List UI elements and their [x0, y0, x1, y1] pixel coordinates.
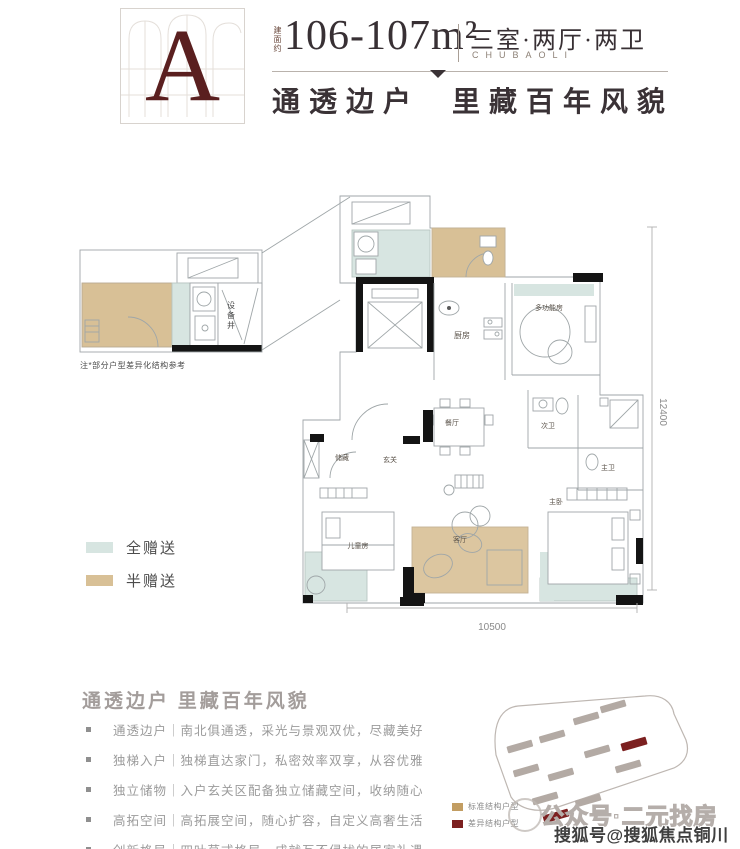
gift-legend-half: 半赠送	[86, 570, 177, 591]
gift-legend-full: 全赠送	[86, 537, 177, 558]
dimension-height: 12400	[657, 398, 668, 426]
watermark-logo-circle	[508, 798, 542, 832]
feature-item: 高拓空间｜高拓展空间，随心扩容，自定义高奢生活	[86, 810, 424, 829]
header-divider	[458, 24, 459, 62]
room-label-second-bath: 次卫	[541, 421, 555, 430]
bullet-icon	[86, 757, 91, 762]
full-gift-label: 全赠送	[126, 537, 177, 558]
bullet-icon	[86, 817, 91, 822]
room-label-multifunction: 多功能房	[535, 303, 563, 312]
elevator-shaft	[356, 277, 434, 352]
full-gift-swatch	[86, 542, 113, 553]
room-label-foyer: 玄关	[383, 455, 397, 464]
diff-structure-swatch	[452, 820, 463, 828]
standard-structure-swatch	[452, 803, 463, 811]
bathrooms	[528, 390, 643, 490]
feature-text: 独立储物｜入户玄关区配备独立储藏空间，收纳随心	[113, 780, 424, 799]
room-label-kitchen: 厨房	[454, 330, 470, 340]
half-gift-label: 半赠送	[126, 570, 177, 591]
room-label-master: 主卧	[549, 497, 563, 506]
feature-text: 高拓空间｜高拓展空间，随心扩容，自定义高奢生活	[113, 810, 424, 829]
badge-letter: A	[145, 14, 220, 118]
foyer-storage	[304, 404, 433, 478]
area-prefix-label: 建面约	[272, 26, 282, 53]
bullet-icon	[86, 727, 91, 732]
header-slogan: 通透边户 里藏百年风貌	[272, 80, 674, 120]
gift-zone-full-band	[514, 284, 594, 296]
half-gift-swatch	[86, 575, 113, 586]
features-list: 通透边户｜南北俱通透，采光与景观双优，尽藏美好 独梯入户｜独梯直达家门，私密效率…	[86, 720, 424, 849]
room-label-dining: 餐厅	[445, 418, 459, 427]
bullet-icon	[86, 787, 91, 792]
room-label-living: 客厅	[453, 535, 467, 544]
watermark-solid-text: 搜狐号@搜狐焦点铜川站	[554, 821, 740, 849]
dimension-width: 10500	[478, 622, 506, 633]
feature-text: 创新格局｜四叶草式格局，成就互不侵扰的居家礼遇	[113, 840, 424, 849]
feature-item: 独立储物｜入户玄关区配备独立储藏空间，收纳随心	[86, 780, 424, 799]
unit-type-badge: A	[120, 8, 245, 124]
area-value: 106-107m²	[284, 12, 478, 60]
room-label-kids: 儿童房	[348, 541, 369, 550]
feature-item: 通透边户｜南北俱通透，采光与景观双优，尽藏美好	[86, 720, 424, 739]
feature-item: 独梯入户｜独梯直达家门，私密效率双享，从容优雅	[86, 750, 424, 769]
dining-area	[425, 399, 493, 495]
feature-text: 独梯入户｜独梯直达家门，私密效率双享，从容优雅	[113, 750, 424, 769]
features-heading: 通透边户 里藏百年风貌	[82, 686, 310, 713]
unit-type-subtitle: CHUBAOLI	[472, 50, 574, 60]
floorplan-note: 注*部分户型差异化结构参考	[80, 360, 186, 370]
feature-text: 通透边户｜南北俱通透，采光与景观双优，尽藏美好	[113, 720, 424, 739]
gift-zone-half-top	[432, 228, 505, 277]
laundry-room	[352, 202, 410, 224]
room-label-storage: 储藏	[335, 453, 349, 462]
room-label-equipment-shaft: 设备井	[227, 300, 236, 331]
room-label-master-bath: 主卫	[601, 463, 615, 472]
gift-legend: 全赠送 半赠送	[86, 537, 177, 591]
inset-detail: 设备井	[80, 250, 262, 352]
poster-page: A 建面约 106-107m² 三室·两厅·两卫 CHUBAOLI 通透边户 里…	[0, 0, 740, 849]
down-triangle-icon	[430, 70, 446, 78]
inset-leader-lines	[262, 197, 350, 350]
header-rule	[272, 71, 668, 72]
feature-item: 创新格局｜四叶草式格局，成就互不侵扰的居家礼遇	[86, 840, 424, 849]
